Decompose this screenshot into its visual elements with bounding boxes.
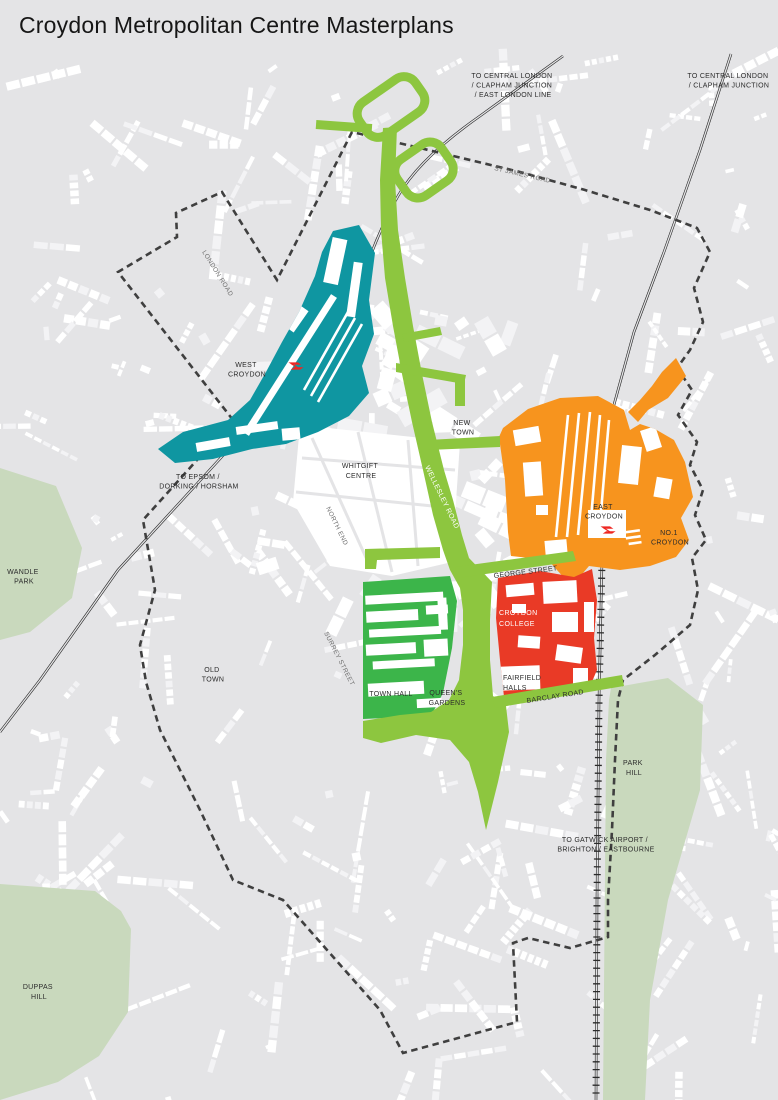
road-stub-2-elbow <box>455 378 465 406</box>
label-town-hall: TOWN HALL <box>369 691 412 698</box>
label-central-london-west: TO CENTRAL LONDON / CLAPHAM JUNCTION / E… <box>471 73 554 99</box>
masterplan-map: Croydon Metropolitan Centre Masterplans … <box>0 0 778 1100</box>
page-title: Croydon Metropolitan Centre Masterplans <box>19 12 454 38</box>
